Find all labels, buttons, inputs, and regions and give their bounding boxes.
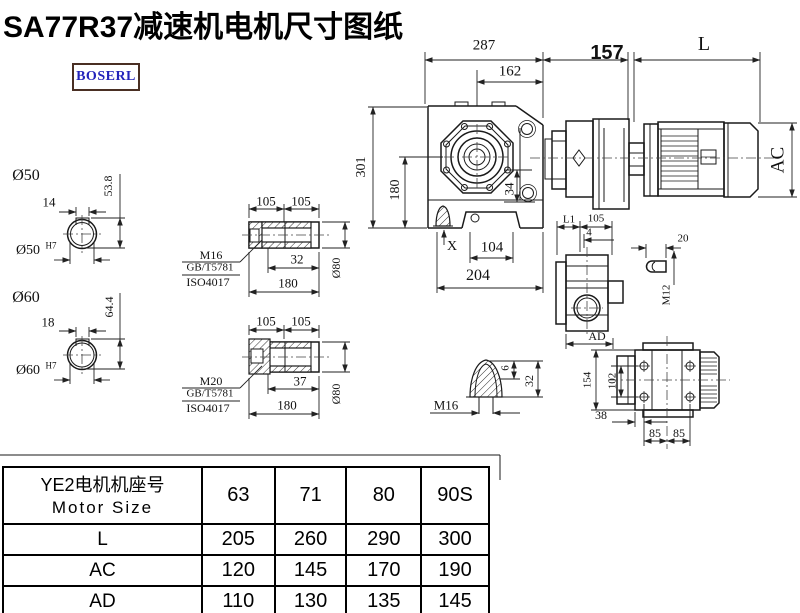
table-size-90S: 90S — [421, 467, 489, 524]
brand-logo-text: BOSERL — [76, 69, 136, 85]
dim-s2-105a: 105 — [256, 315, 276, 328]
header-cn: YE2电机机座号 — [4, 473, 201, 498]
cell-AD-80: 135 — [346, 586, 421, 613]
dim-s2-dia: Ø80 — [330, 384, 342, 405]
table-size-71: 71 — [275, 467, 347, 524]
label-plug-thread: M16 — [434, 399, 459, 412]
dim-64-4: 64.4 — [103, 297, 115, 318]
dim-side-4: 4 — [586, 228, 592, 239]
cell-AC-90S: 190 — [421, 555, 489, 586]
dim-s1-105a: 105 — [256, 195, 276, 208]
dim-102: 102 — [608, 373, 619, 390]
table-row-AC: AC 120 145 170 190 — [3, 555, 489, 586]
dim-38: 38 — [595, 409, 607, 421]
dim-plug-6: 6 — [501, 365, 512, 371]
dim-104: 104 — [481, 241, 504, 256]
dim-154: 154 — [583, 372, 594, 389]
label-s1-iso: ISO4017 — [186, 276, 229, 288]
dim-s2-37: 37 — [294, 375, 307, 388]
cell-AC-63: 120 — [202, 555, 275, 586]
table-size-63: 63 — [202, 467, 275, 524]
header-en: Motor Size — [4, 498, 201, 518]
label-bore50-fit: Ø50 — [16, 244, 40, 258]
row-label-AC: AC — [3, 555, 202, 586]
cell-AC-71: 145 — [275, 555, 347, 586]
dim-157: 157 — [590, 43, 623, 63]
table-size-80: 80 — [346, 467, 421, 524]
dim-s2-180: 180 — [277, 399, 297, 412]
dim-s1-dia: Ø80 — [330, 258, 342, 279]
dim-L: L — [698, 34, 710, 54]
dim-204: 204 — [466, 268, 490, 284]
dim-X: X — [447, 240, 457, 254]
table-header-row: YE2电机机座号 Motor Size 63 71 80 90S — [3, 467, 489, 524]
label-bore60: Ø60 — [12, 290, 40, 306]
dim-AD: AD — [588, 330, 605, 342]
dim-key-20: 20 — [678, 234, 689, 245]
label-bore50-tol: H7 — [46, 242, 57, 251]
label-s2-std: GB/T5781 — [186, 389, 233, 400]
cell-AD-90S: 145 — [421, 586, 489, 613]
drawing-sheet: SA77R37减速机电机尺寸图纸 BOSERL 287 162 157 L AC… — [0, 0, 800, 613]
dim-s1-105b: 105 — [291, 195, 311, 208]
page-title: SA77R37减速机电机尺寸图纸 — [3, 2, 403, 46]
dim-L1: L1 — [563, 215, 575, 226]
label-bore60-tol: H7 — [46, 362, 57, 371]
cell-AD-63: 110 — [202, 586, 275, 613]
dim-s2-105b: 105 — [291, 315, 311, 328]
dim-287: 287 — [473, 39, 496, 54]
table-header-motor-size: YE2电机机座号 Motor Size — [3, 467, 202, 524]
cell-AD-71: 130 — [275, 586, 347, 613]
dim-AC: AC — [769, 147, 788, 173]
row-label-L: L — [3, 524, 202, 555]
cell-AC-80: 170 — [346, 555, 421, 586]
dim-key-14: 14 — [43, 196, 56, 209]
table-row-AD: AD 110 130 135 145 — [3, 586, 489, 613]
cell-L-80: 290 — [346, 524, 421, 555]
label-s2-thread: M20 — [200, 375, 223, 387]
label-s2-iso: ISO4017 — [186, 402, 229, 414]
dim-s1-32: 32 — [291, 253, 304, 266]
dim-key-18: 18 — [42, 316, 55, 329]
label-s1-std: GB/T5781 — [186, 263, 233, 274]
label-bore60-fit: Ø60 — [16, 364, 40, 378]
dim-301: 301 — [355, 157, 369, 178]
dim-162: 162 — [499, 65, 522, 80]
dim-53-8: 53.8 — [102, 176, 114, 197]
cell-L-63: 205 — [202, 524, 275, 555]
dim-180-height: 180 — [389, 180, 403, 201]
cell-L-71: 260 — [275, 524, 347, 555]
table-row-L: L 205 260 290 300 — [3, 524, 489, 555]
adapter-and-motor — [530, 119, 775, 209]
dim-34: 34 — [503, 183, 516, 196]
spec-table: YE2电机机座号 Motor Size 63 71 80 90S L 205 2… — [2, 466, 490, 613]
dim-s1-180: 180 — [278, 277, 298, 290]
label-bore50: Ø50 — [12, 168, 40, 184]
dim-85b: 85 — [673, 427, 685, 439]
row-label-AD: AD — [3, 586, 202, 613]
dim-side-105: 105 — [588, 214, 605, 225]
gearbox-front-view — [428, 102, 543, 245]
brand-logo: BOSERL — [72, 63, 140, 91]
dim-plug-32: 32 — [523, 375, 535, 387]
cell-L-90S: 300 — [421, 524, 489, 555]
label-s1-thread: M16 — [200, 249, 223, 261]
label-m12: M12 — [662, 285, 673, 306]
dim-85a: 85 — [649, 427, 661, 439]
